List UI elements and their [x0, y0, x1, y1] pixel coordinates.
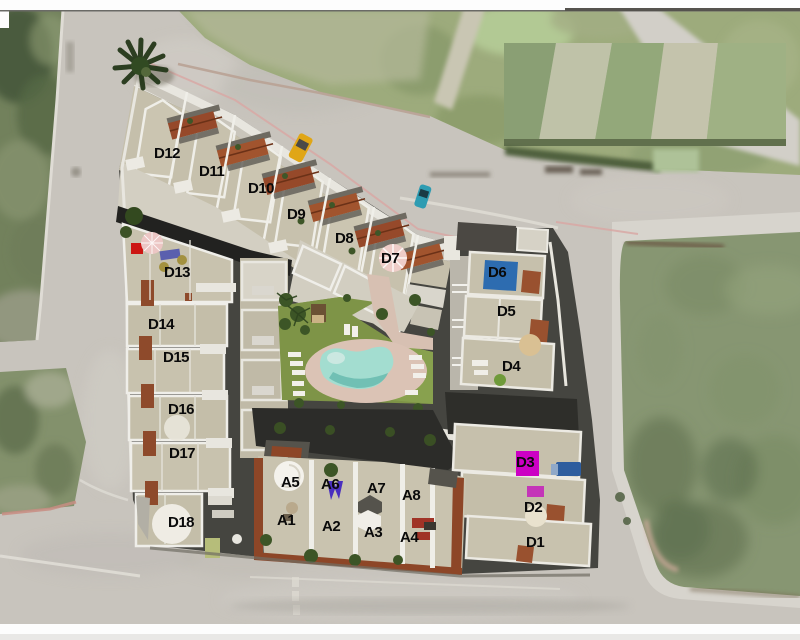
svg-text:D13: D13: [164, 264, 190, 281]
svg-text:A6: A6: [321, 476, 339, 493]
svg-text:A1: A1: [277, 512, 295, 529]
svg-text:D4: D4: [502, 358, 521, 375]
svg-text:D1: D1: [526, 534, 544, 551]
svg-text:A5: A5: [281, 474, 299, 491]
svg-text:A8: A8: [402, 487, 420, 504]
svg-text:D16: D16: [168, 401, 194, 418]
svg-text:D2: D2: [524, 499, 542, 516]
svg-text:A4: A4: [400, 529, 419, 546]
svg-text:D7: D7: [381, 250, 399, 267]
svg-text:D14: D14: [148, 316, 175, 333]
svg-text:D17: D17: [169, 445, 195, 462]
svg-text:D12: D12: [154, 145, 180, 162]
svg-text:D18: D18: [168, 514, 194, 531]
svg-text:D6: D6: [488, 264, 506, 281]
svg-text:D3: D3: [516, 454, 534, 471]
svg-text:A3: A3: [364, 524, 382, 541]
svg-text:A7: A7: [367, 480, 385, 497]
svg-text:D15: D15: [163, 349, 189, 366]
svg-text:A2: A2: [322, 518, 340, 535]
svg-text:D9: D9: [287, 206, 305, 223]
svg-text:D10: D10: [248, 180, 274, 197]
svg-text:D8: D8: [335, 230, 353, 247]
svg-text:D11: D11: [199, 163, 224, 180]
svg-text:D5: D5: [497, 303, 515, 320]
